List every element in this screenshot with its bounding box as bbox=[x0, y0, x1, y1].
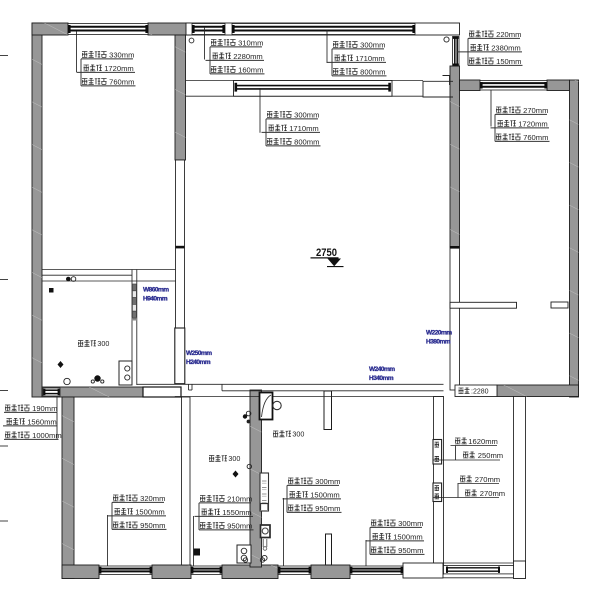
svg-text:1500mm: 1500mm bbox=[310, 490, 340, 499]
svg-text:W860mm: W860mm bbox=[143, 287, 169, 294]
svg-text:270mm: 270mm bbox=[480, 489, 505, 498]
svg-text:1620mm: 1620mm bbox=[468, 437, 498, 446]
svg-text:270mm: 270mm bbox=[523, 106, 548, 115]
svg-text::2280: :2280 bbox=[471, 389, 489, 396]
svg-text:160mm: 160mm bbox=[238, 65, 263, 74]
svg-text:300: 300 bbox=[292, 430, 304, 439]
svg-text:300mm: 300mm bbox=[315, 477, 340, 486]
svg-text:2380mm: 2380mm bbox=[491, 43, 521, 52]
svg-text:800mm: 800mm bbox=[294, 137, 319, 146]
svg-text:1720mm: 1720mm bbox=[104, 64, 134, 73]
svg-text:W240mm: W240mm bbox=[369, 366, 395, 373]
svg-text:800mm: 800mm bbox=[360, 67, 385, 76]
svg-text:320mm: 320mm bbox=[140, 494, 165, 503]
svg-text:760mm: 760mm bbox=[109, 77, 134, 86]
svg-text:300: 300 bbox=[228, 454, 240, 463]
svg-text:H940mm: H940mm bbox=[143, 295, 168, 302]
svg-text:760mm: 760mm bbox=[523, 133, 548, 142]
svg-text:950mm: 950mm bbox=[140, 521, 165, 530]
svg-text:1500mm: 1500mm bbox=[393, 532, 423, 541]
svg-text:W250mm: W250mm bbox=[186, 350, 212, 357]
svg-text:H380mm: H380mm bbox=[426, 338, 451, 345]
svg-text:1560mm: 1560mm bbox=[27, 417, 57, 426]
svg-text:150mm: 150mm bbox=[496, 57, 521, 66]
svg-text:W220mm: W220mm bbox=[426, 330, 452, 337]
svg-text:1550mm: 1550mm bbox=[222, 508, 252, 517]
svg-text:300mm: 300mm bbox=[398, 519, 423, 528]
svg-text:2280mm: 2280mm bbox=[233, 52, 263, 61]
svg-text:H240mm: H240mm bbox=[186, 359, 211, 366]
svg-text:950mm: 950mm bbox=[315, 504, 340, 513]
svg-text:300mm: 300mm bbox=[294, 110, 319, 119]
svg-text:300mm: 300mm bbox=[360, 40, 385, 49]
svg-text:300: 300 bbox=[97, 339, 109, 348]
svg-text:1710mm: 1710mm bbox=[355, 54, 385, 63]
svg-text:190mm: 190mm bbox=[32, 404, 57, 413]
svg-text:270mm: 270mm bbox=[475, 475, 500, 484]
svg-text:330mm: 330mm bbox=[109, 50, 134, 59]
svg-text:950mm: 950mm bbox=[227, 521, 252, 530]
svg-text:1500mm: 1500mm bbox=[135, 507, 165, 516]
svg-text:1710mm: 1710mm bbox=[289, 124, 319, 133]
svg-text:210mm: 210mm bbox=[227, 494, 252, 503]
svg-text:310mm: 310mm bbox=[238, 38, 263, 47]
svg-text:220mm: 220mm bbox=[496, 30, 521, 39]
svg-text:250mm: 250mm bbox=[478, 451, 503, 460]
svg-text:1720mm: 1720mm bbox=[518, 119, 548, 128]
svg-text:950mm: 950mm bbox=[398, 546, 423, 555]
svg-text:H340mm: H340mm bbox=[369, 375, 394, 382]
